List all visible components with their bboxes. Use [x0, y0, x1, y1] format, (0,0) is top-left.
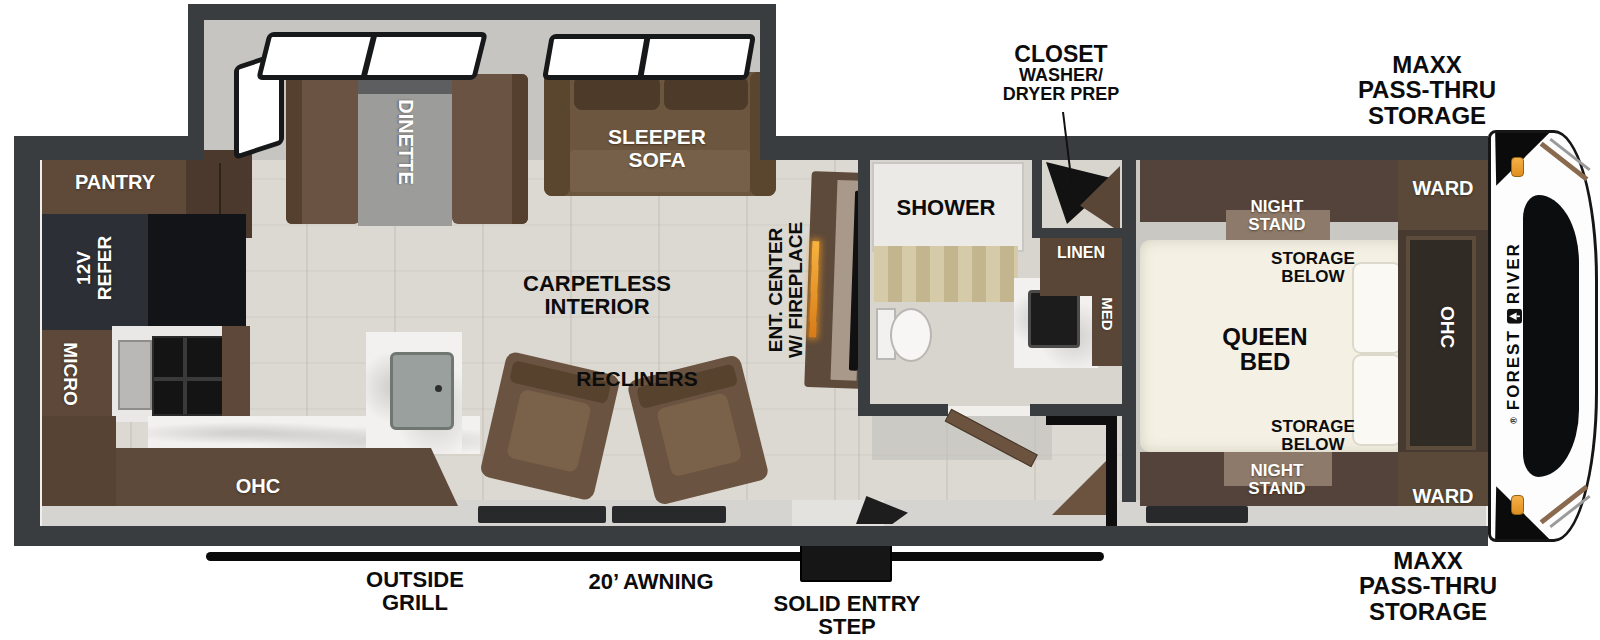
- forest-river-logo-icon: [1507, 309, 1522, 324]
- cap-windshield-decal: [1523, 195, 1579, 477]
- recliner-left-seat: [506, 389, 592, 473]
- dinette-bench-left-back: [286, 74, 302, 224]
- sleeper-sofa-label: SLEEPER SOFA: [572, 126, 742, 171]
- maxx-storage-top-label: MAXX PASS-THRU STORAGE: [1347, 52, 1507, 128]
- ward-top-label: WARD: [1398, 178, 1488, 200]
- bath-wall-bottom-left: [858, 404, 948, 416]
- faucet-dot: [435, 385, 442, 392]
- kitchen-ohc-label: OHC: [188, 476, 328, 498]
- range-cooktop: [152, 336, 224, 416]
- queen-bed-label: QUEEN BED: [1185, 324, 1345, 375]
- bath-sink: [1028, 290, 1080, 348]
- storage-below-bottom-label: STORAGE BELOW: [1243, 418, 1383, 454]
- marker-light-top: [1511, 157, 1524, 177]
- bath-wall-right: [1122, 160, 1136, 502]
- micro-label: MICRO: [60, 342, 81, 405]
- fireplace-glow: [809, 241, 819, 337]
- window-living-right: [612, 506, 726, 523]
- bath-wall-bottom-right: [1030, 404, 1136, 416]
- refer-label: 12V REFER: [74, 236, 115, 300]
- forest-river-wordmark: ® FOREST RIVER: [1504, 242, 1524, 424]
- dinette-window-divider: [361, 37, 376, 75]
- cabinet-strip: [222, 326, 250, 422]
- marker-light-bottom: [1511, 495, 1524, 515]
- storage-below-top-label: STORAGE BELOW: [1243, 250, 1383, 286]
- ent-center-label: ENT. CENTER W/ FIREPLACE: [766, 222, 806, 358]
- bath-wall-left: [858, 160, 870, 406]
- registered-mark: ®: [1509, 415, 1519, 424]
- slideout-wall-left: [188, 4, 204, 160]
- recliner-right-seat: [656, 392, 743, 477]
- med-label: MED: [1099, 297, 1115, 330]
- bedroom-ohc-label: OHC: [1437, 306, 1458, 348]
- rear-wall: [14, 136, 40, 546]
- sofa-window: [542, 34, 756, 80]
- recliners-label: RECLINERS: [557, 368, 717, 390]
- closet-wall-horizontal: [1032, 228, 1122, 238]
- dinette-bench-right: [452, 74, 528, 224]
- corner-cabinet: [42, 416, 116, 506]
- top-wall-left: [14, 136, 196, 160]
- slideout-wall-right: [760, 4, 776, 160]
- oven-door: [118, 340, 152, 410]
- dinette-bench-left: [286, 74, 360, 224]
- sofa-arm-left: [544, 72, 570, 196]
- rv-floorplan-diagram: DINETTE SLEEPER SOFA ENT. CENTER W/ FIRE…: [0, 0, 1600, 640]
- entry-step-label: SOLID ENTRY STEP: [762, 592, 932, 639]
- sofa-back-cushion-left: [574, 76, 660, 110]
- closet-callout: CLOSET WASHER/ DRYER PREP: [975, 42, 1147, 105]
- sofa-back-cushion-right: [664, 76, 748, 110]
- awning-label: 20’ AWNING: [566, 570, 736, 593]
- maxx-storage-bottom-label: MAXX PASS-THRU STORAGE: [1348, 548, 1508, 624]
- top-wall-right: [776, 136, 1488, 160]
- window-bedroom: [1146, 506, 1248, 523]
- pantry-label: PANTRY: [42, 172, 188, 194]
- shower-label: SHOWER: [872, 196, 1020, 219]
- night-stand-top-label: NIGHT STAND: [1227, 198, 1327, 235]
- dinette-label: DINETTE: [394, 99, 416, 185]
- shower-pan: [874, 246, 1018, 302]
- brand-word-river: RIVER: [1504, 242, 1524, 304]
- awning-line: [206, 552, 1104, 561]
- window-living-left: [478, 506, 606, 523]
- brand-word-forest: FOREST: [1504, 329, 1524, 410]
- sofa-window-divider: [638, 39, 650, 75]
- bottom-wall: [14, 526, 1488, 546]
- kitchen-sink: [390, 352, 454, 430]
- dinette-window: [256, 32, 488, 80]
- slideout-wall-top: [188, 4, 776, 20]
- outside-grill-label: OUTSIDE GRILL: [340, 568, 490, 615]
- toilet-bowl: [890, 308, 932, 362]
- closet-wall-vertical: [1032, 160, 1042, 238]
- ward-bottom-label: WARD: [1398, 486, 1488, 508]
- night-stand-bottom-label: NIGHT STAND: [1227, 462, 1327, 499]
- linen-label: LINEN: [1040, 244, 1122, 261]
- dinette-bench-right-back: [512, 74, 528, 224]
- carpetless-interior-label: CARPETLESS INTERIOR: [517, 272, 677, 319]
